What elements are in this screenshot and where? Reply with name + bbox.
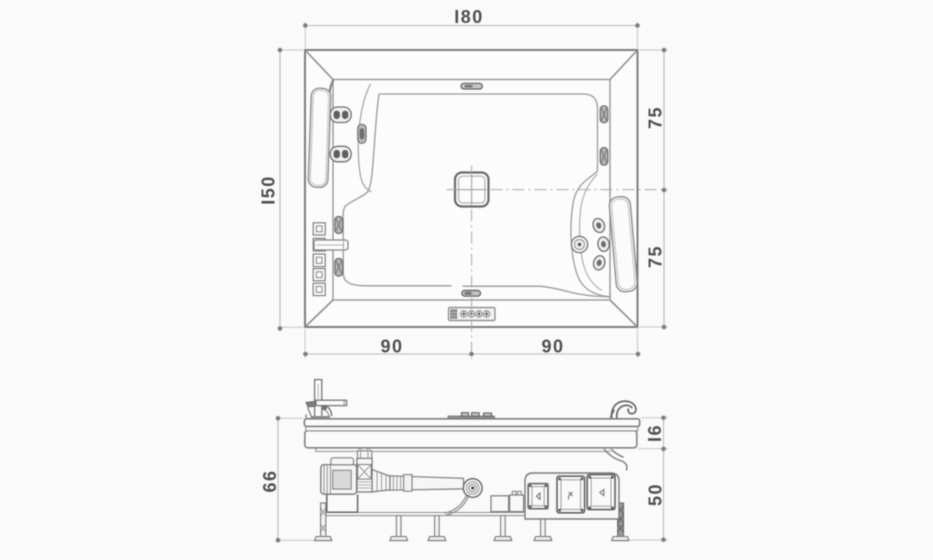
svg-text:75: 75 [646,106,666,129]
svg-text:50: 50 [646,483,666,506]
svg-text:66: 66 [260,469,280,492]
svg-text:I6: I6 [645,424,665,442]
svg-text:I50: I50 [259,175,279,205]
svg-text:90: 90 [380,336,403,356]
svg-text:I80: I80 [454,7,484,27]
svg-text:90: 90 [541,336,564,356]
svg-text:75: 75 [646,245,666,268]
